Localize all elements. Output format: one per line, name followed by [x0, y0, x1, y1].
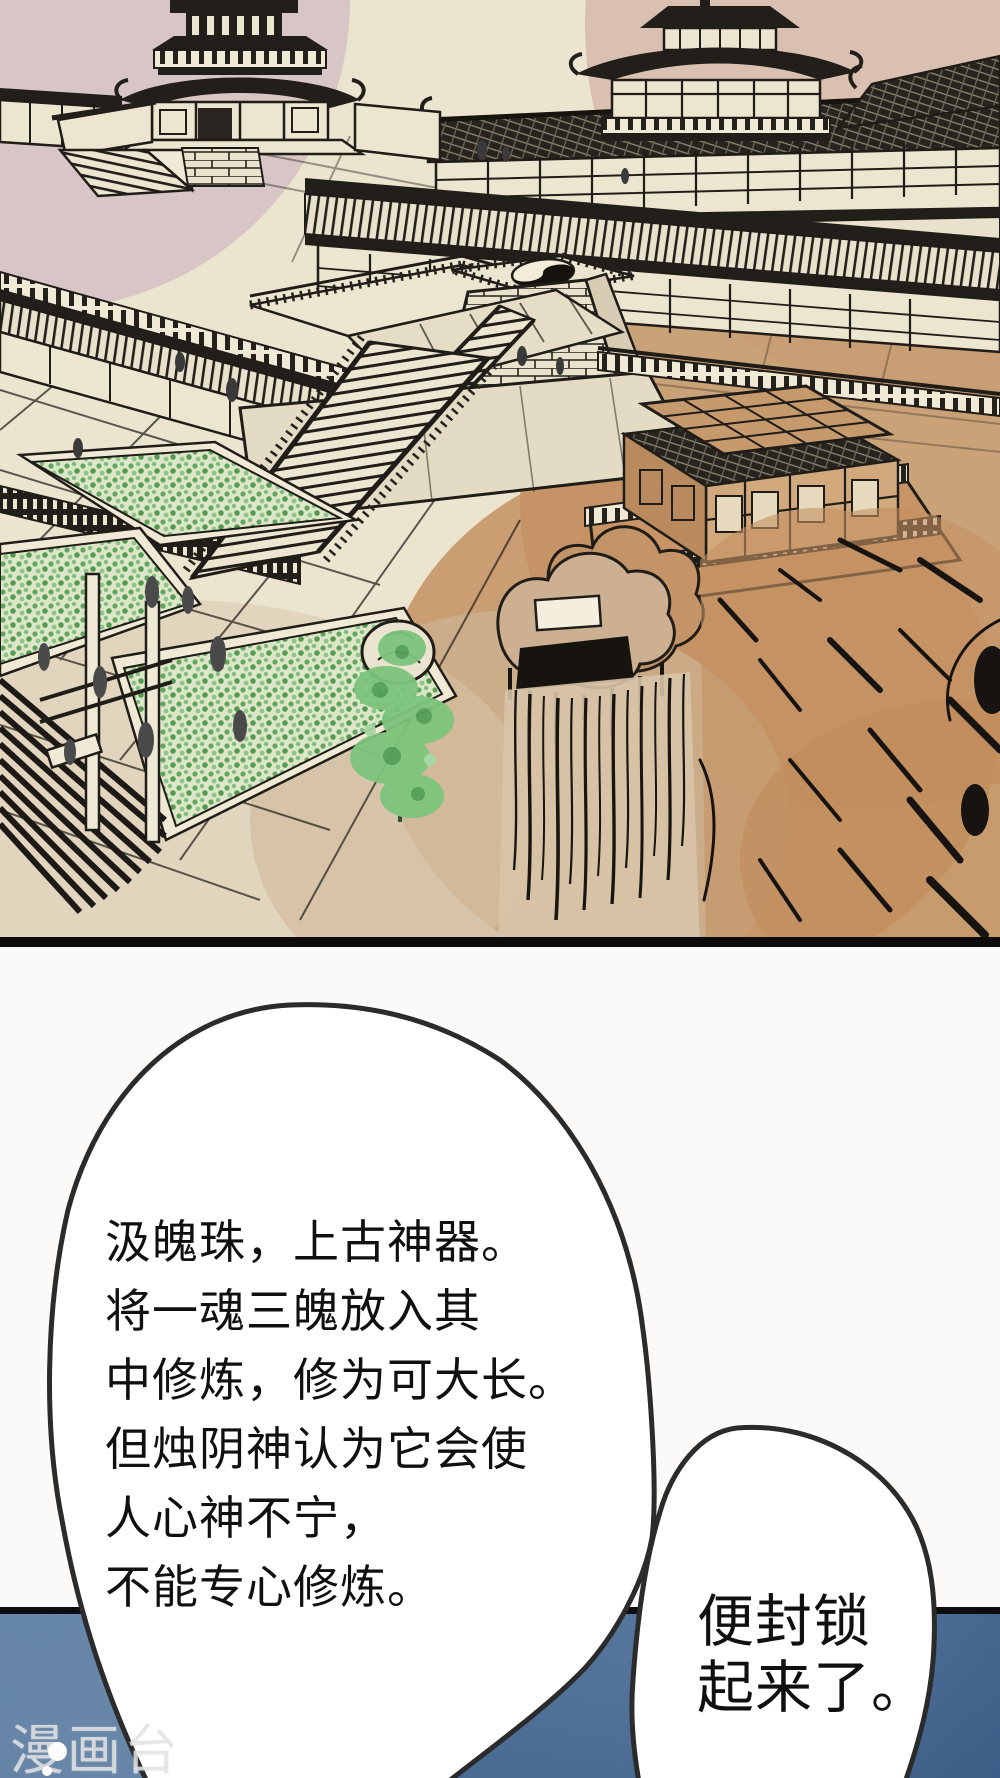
bubble-text-line: 将一魂三魄放入其 — [105, 1277, 625, 1346]
temple-illustration — [0, 0, 1000, 947]
watermark-manhuatai: 漫画台 — [10, 1706, 181, 1778]
speech-bubble-secondary-text: 便封锁 起来了。 — [697, 1589, 977, 1721]
temple-illustration-panel — [0, 0, 1000, 947]
watermark-bubble-dot-icon — [42, 1766, 52, 1776]
waterfall-icon — [498, 553, 700, 947]
bubble-text-line: 但烛阴神认为它会使 — [105, 1415, 625, 1484]
speech-bubble-main-text: 汲魄珠，上古神器。 将一魂三魄放入其 中修炼，修为可大长。 但烛阴神认为它会使 … — [105, 1208, 625, 1622]
bubble-text-line: 汲魄珠，上古神器。 — [105, 1208, 625, 1277]
watermark-bubble-dot-icon — [48, 1742, 67, 1761]
bubble-text-line: 便封锁 — [697, 1589, 977, 1655]
rocky-hillside — [700, 508, 1000, 947]
bubble-text-line: 不能专心修炼。 — [105, 1553, 625, 1622]
panel-border — [0, 937, 1000, 947]
bubble-text-line: 人心神不宁， — [105, 1484, 625, 1553]
bubble-text-line: 起来了。 — [697, 1655, 977, 1721]
bubble-text-line: 中修炼，修为可大长。 — [105, 1346, 625, 1415]
comic-page: 汲魄珠，上古神器。 将一魂三魄放入其 中修炼，修为可大长。 但烛阴神认为它会使 … — [0, 0, 1000, 1778]
